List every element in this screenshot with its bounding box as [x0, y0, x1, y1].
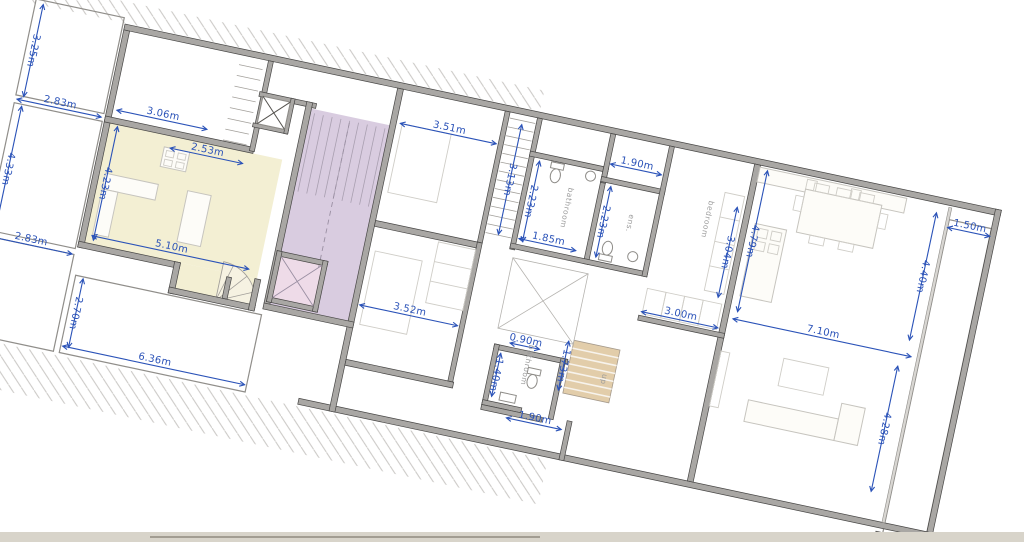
floor-plan-page: 3.25m2.83m4.33m2.83m2.70m6.36m3.06m2.53m…: [0, 0, 1024, 542]
scan-artifacts: [0, 532, 1024, 542]
floor-plan-canvas: 3.25m2.83m4.33m2.83m2.70m6.36m3.06m2.53m…: [0, 0, 1024, 542]
